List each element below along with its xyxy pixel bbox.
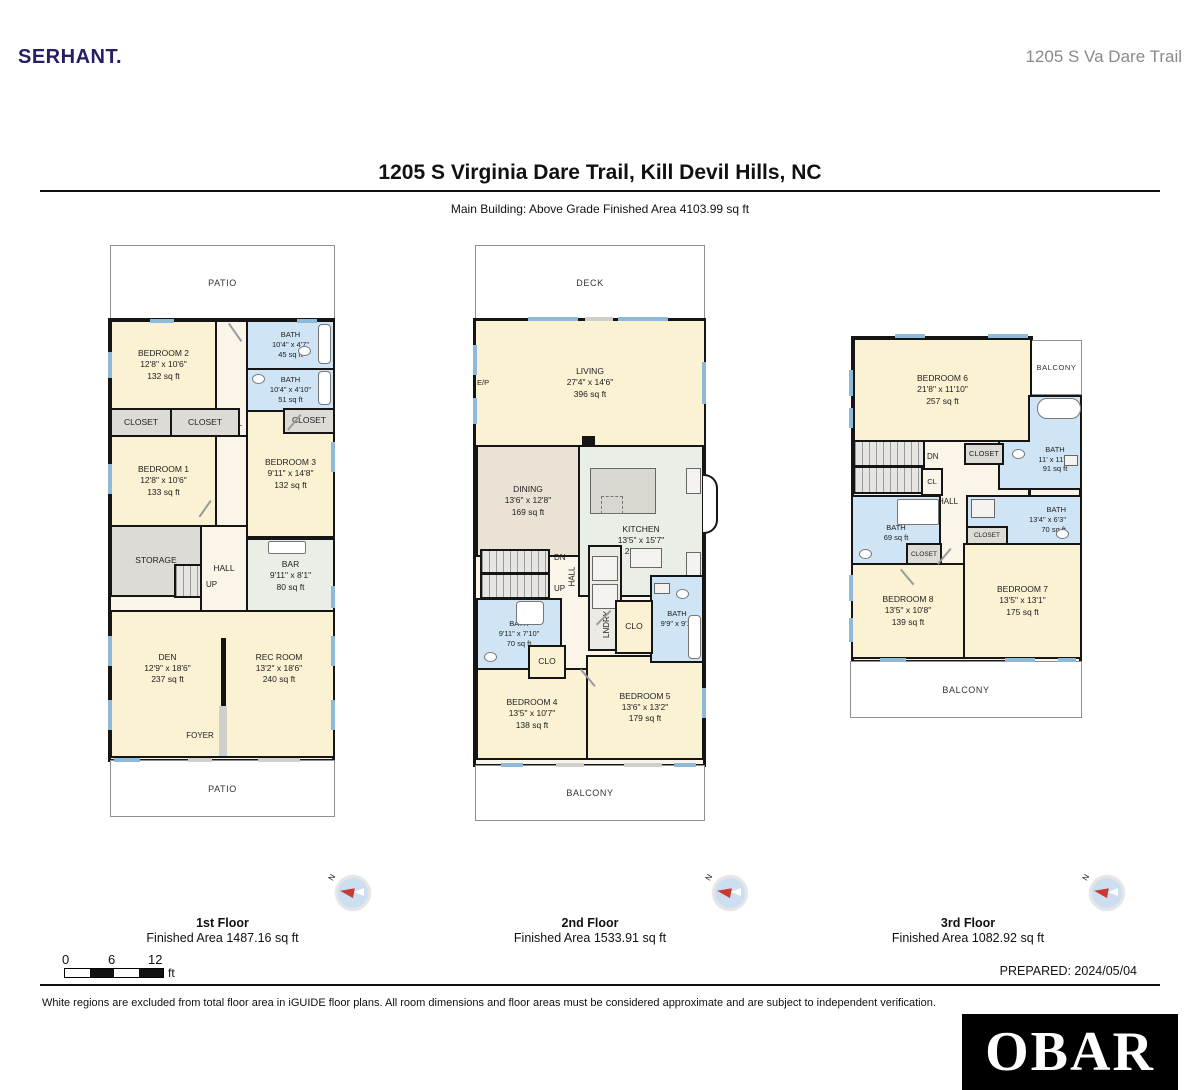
room-dims: 10'4" x 4'10" [270, 385, 311, 395]
window-marker [618, 317, 668, 321]
patio-top-area: PATIO [110, 245, 335, 321]
page-subtitle: Main Building: Above Grade Finished Area… [0, 202, 1200, 216]
room-dining: DINING 13'6" x 12'8" 169 sq ft [476, 445, 580, 557]
balcony-label: BALCONY [942, 685, 989, 695]
room-name: BATH [667, 609, 686, 619]
deck-area: DECK [475, 245, 705, 321]
scale-seg [65, 969, 90, 977]
room-name: BATH [281, 375, 300, 385]
sink-icon [971, 499, 995, 518]
scale-seg [114, 969, 139, 977]
room-name: BAR [282, 559, 299, 570]
window-marker [880, 658, 906, 662]
room-bedroom-4: BEDROOM 4 13'5" x 10'7" 138 sq ft [476, 668, 588, 760]
scale-6: 6 [108, 952, 115, 967]
room-name: BEDROOM 4 [506, 697, 557, 708]
shower-icon [897, 499, 939, 525]
room-name: BEDROOM 1 [138, 464, 189, 475]
room-name: REC ROOM [256, 652, 303, 663]
room-dims: 13'4" x 6'3" [1029, 515, 1066, 525]
stairs-dn-label: DN [927, 452, 939, 461]
window-marker [702, 688, 706, 718]
room-name: STORAGE [135, 555, 176, 566]
serhant-logo: SERHANT. [18, 46, 122, 69]
stair-landing-wall [853, 465, 925, 468]
room-closet-3: CLOSET [283, 408, 335, 434]
bathtub-icon [688, 615, 701, 659]
balcony-top-area: BALCONY [1031, 340, 1082, 395]
window-marker [988, 334, 1028, 338]
stairs-icon [174, 564, 202, 598]
compass-needle-red [339, 886, 355, 898]
patio-bottom-area: PATIO [110, 760, 335, 817]
room-name: BEDROOM 7 [997, 584, 1048, 595]
room-name: BEDROOM 5 [619, 691, 670, 702]
window-marker [331, 442, 335, 472]
room-dims: 27'4" x 14'6" [567, 377, 614, 388]
washer-icon [592, 556, 618, 581]
room-closet-cl: CL [921, 468, 943, 496]
window-marker [108, 464, 112, 494]
balcony-bottom-area: BALCONY [850, 661, 1082, 718]
room-bedroom-5: BEDROOM 5 13'6" x 13'2" 179 sq ft [586, 655, 704, 760]
compass-needle-white [731, 888, 741, 896]
room-name: CLO [625, 621, 642, 632]
window-marker [528, 317, 578, 321]
balcony-label: BALCONY [566, 788, 613, 798]
room-area: 138 sq ft [516, 720, 549, 731]
room-name: CL [927, 477, 937, 487]
room-dims: 12'9" x 18'6" [144, 663, 191, 674]
compass-n-label: N [327, 873, 338, 883]
window-marker [108, 636, 112, 666]
hall-label: HALL [568, 566, 577, 586]
compass-ring [1090, 876, 1124, 910]
compass-ring [336, 876, 370, 910]
room-closet-clo1: CLO [615, 600, 653, 654]
door-gap [258, 758, 300, 762]
scale-seg [139, 969, 164, 977]
room-closet-2: CLOSET [170, 408, 240, 437]
room-name: KITCHEN [622, 524, 659, 535]
room-area: 175 sq ft [1006, 607, 1039, 618]
sink-icon [654, 583, 670, 594]
compass-needle-red [716, 886, 732, 898]
toilet-icon [859, 549, 872, 559]
compass-icon: N [1086, 872, 1124, 910]
room-dims: 9'11" x 8'1" [270, 570, 311, 581]
compass-needle-red [1093, 886, 1109, 898]
floor2-title: 2nd Floor [475, 916, 705, 930]
kitchen-island-icon [590, 468, 656, 514]
stair-landing-wall [480, 572, 550, 575]
room-bedroom-7: BEDROOM 7 13'5" x 13'1" 175 sq ft [963, 543, 1082, 659]
room-name: DEN [159, 652, 177, 663]
room-name: BATH [1045, 445, 1064, 455]
room-area: 237 sq ft [151, 674, 184, 685]
floor1-area: Finished Area 1487.16 sq ft [110, 931, 335, 945]
compass-icon: N [709, 872, 747, 910]
window-marker [297, 319, 317, 323]
floor3-area: Finished Area 1082.92 sq ft [852, 931, 1084, 945]
bay-window-icon [703, 474, 718, 534]
room-name: CLOSET [969, 449, 999, 459]
door-gap [624, 763, 662, 767]
room-closet-1: CLOSET [110, 408, 172, 437]
window-marker [473, 345, 477, 375]
obar-logo: OBAR [962, 1014, 1178, 1090]
prepared-date: PREPARED: 2024/05/04 [1000, 964, 1137, 978]
stove-icon [630, 548, 662, 568]
room-name: BATH [281, 330, 300, 340]
room-den-label: DEN 12'9" x 18'6" 237 sq ft [110, 652, 225, 685]
compass-ring [713, 876, 747, 910]
room-name: HALL [213, 563, 234, 574]
room-area: 132 sq ft [274, 480, 307, 491]
room-dims: 13'5" x 10'7" [509, 708, 556, 719]
compass-icon: N [332, 872, 370, 910]
scale-12: 12 [148, 952, 162, 967]
room-area: 169 sq ft [512, 507, 545, 518]
bar-counter-icon [268, 541, 306, 554]
room-dims: 9'11" x 7'10" [499, 629, 540, 639]
room-dims: 13'5" x 13'1" [999, 595, 1046, 606]
room-rec-label: REC ROOM 13'2" x 18'6" 240 sq ft [223, 652, 335, 685]
room-bedroom-2: BEDROOM 2 12'8" x 10'6" 132 sq ft [110, 320, 217, 410]
room-dims: 13'2" x 18'6" [256, 663, 303, 674]
ep-label: E/P [477, 378, 489, 387]
stairs-up-label: UP [206, 580, 217, 589]
door-gap [585, 317, 613, 321]
room-dims: 13'6" x 13'2" [622, 702, 669, 713]
floor1-title: 1st Floor [110, 916, 335, 930]
room-area: 396 sq ft [574, 389, 607, 400]
toilet-icon [1012, 449, 1025, 459]
obar-wordmark: OBAR [985, 1020, 1155, 1084]
room-hall-mid: HALL [200, 525, 248, 612]
balcony-area: BALCONY [475, 765, 705, 821]
hall-label: HALL [938, 497, 958, 506]
compass-n-label: N [1081, 873, 1092, 883]
window-marker [849, 618, 853, 642]
room-name: CLOSET [188, 417, 222, 428]
kitchen-dashed-icon [601, 496, 623, 514]
window-marker [1058, 658, 1076, 662]
room-name: BATH [1047, 505, 1066, 515]
room-name: CLOSET [974, 532, 1000, 540]
window-marker [501, 763, 523, 767]
room-area: 133 sq ft [147, 487, 180, 498]
window-marker [895, 334, 925, 338]
bathtub-icon [516, 601, 544, 625]
room-dims: 12'8" x 10'6" [140, 475, 187, 486]
stairs-dn-label: DN [554, 553, 566, 562]
room-area: 179 sq ft [629, 713, 662, 724]
window-marker [473, 398, 477, 424]
room-bedroom-6: BEDROOM 6 21'8" x 11'10" 257 sq ft [853, 338, 1032, 442]
fridge-icon [686, 468, 701, 494]
header-address: 1205 S Va Dare Trail [1025, 47, 1182, 67]
scale-0: 0 [62, 952, 69, 967]
sink-icon [1064, 455, 1078, 466]
room-name: LIVING [576, 366, 604, 377]
window-marker [331, 636, 335, 666]
stairs-up-label: UP [554, 584, 565, 593]
window-marker [674, 763, 696, 767]
compass-needle-white [1108, 888, 1118, 896]
room-area: 80 sq ft [277, 582, 305, 593]
toilet-icon [252, 374, 265, 384]
toilet-icon [676, 589, 689, 599]
floor2-area: Finished Area 1533.91 sq ft [475, 931, 705, 945]
room-area: 132 sq ft [147, 371, 180, 382]
room-dims: 21'8" x 11'10" [917, 384, 968, 395]
room-area: 69 sq ft [884, 533, 909, 543]
window-marker [849, 408, 853, 428]
foyer-label: FOYER [170, 731, 230, 740]
window-marker [1005, 658, 1035, 662]
door-gap [188, 758, 212, 762]
footer-divider [40, 984, 1160, 986]
window-marker [849, 370, 853, 396]
room-name: BEDROOM 8 [882, 594, 933, 605]
bathtub-icon [318, 371, 331, 405]
room-area: 51 sq ft [278, 395, 303, 405]
patio-label: PATIO [208, 278, 237, 288]
deck-label: DECK [576, 278, 603, 288]
room-name: CLOSET [911, 551, 937, 559]
title-divider [40, 190, 1160, 192]
window-marker [331, 586, 335, 608]
bathtub-icon [318, 324, 331, 364]
scale-seg [90, 969, 115, 977]
partial-wall [221, 638, 226, 706]
room-name: CLO [538, 656, 555, 667]
floor3-title: 3rd Floor [852, 916, 1084, 930]
window-marker [108, 352, 112, 378]
room-name: BEDROOM 3 [265, 457, 316, 468]
room-closet-top: CLOSET [964, 443, 1004, 465]
room-area: 240 sq ft [263, 674, 296, 685]
compass-n-label: N [704, 873, 715, 883]
toilet-icon [298, 346, 311, 356]
window-marker [150, 319, 174, 323]
window-marker [331, 700, 335, 730]
disclaimer-text: White regions are excluded from total fl… [42, 997, 936, 1009]
patio-label: PATIO [208, 784, 237, 794]
bathtub-icon [1037, 398, 1081, 419]
toilet-icon [1056, 529, 1069, 539]
room-closet-clo2: CLO [528, 645, 566, 679]
scale-bar [64, 968, 164, 978]
scale-unit: ft [168, 966, 175, 980]
room-dims: 12'8" x 10'6" [140, 359, 187, 370]
toilet-icon [484, 652, 497, 662]
room-area: 139 sq ft [892, 617, 925, 628]
window-marker [849, 575, 853, 601]
room-dims: 9'11" x 14'8" [268, 468, 314, 479]
window-marker [702, 362, 706, 404]
room-dims: 13'6" x 12'8" [505, 495, 552, 506]
room-dims: 13'5" x 15'7" [618, 535, 665, 546]
room-name: DINING [513, 484, 543, 495]
room-name: BEDROOM 6 [917, 373, 968, 384]
window-marker [114, 758, 140, 762]
room-name: BEDROOM 2 [138, 348, 189, 359]
compass-needle-white [354, 888, 364, 896]
balcony-label: BALCONY [1036, 363, 1076, 372]
room-name: CLOSET [124, 417, 158, 428]
door-gap [556, 763, 584, 767]
room-living: LIVING 27'4" x 14'6" 396 sq ft [476, 321, 704, 447]
room-dims: 13'5" x 10'8" [885, 605, 932, 616]
room-area: 257 sq ft [926, 396, 959, 407]
window-marker [108, 700, 112, 730]
page-title: 1205 S Virginia Dare Trail, Kill Devil H… [0, 161, 1200, 185]
